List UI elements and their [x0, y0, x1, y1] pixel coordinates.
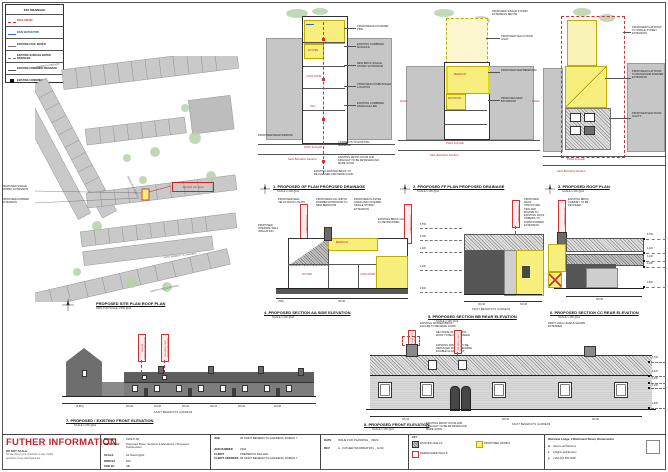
terrace-block-site-row [86, 175, 237, 208]
level-line [651, 383, 666, 384]
section-note: EXISTING PAINTED BRICK FACADE TO BE MADE… [420, 322, 460, 328]
existing-foul-icon [6, 43, 17, 47]
room-label: BATHROOM [448, 98, 461, 100]
manhole-marker [322, 78, 325, 81]
street-name-label: Saint Benedicts Gardens [430, 154, 459, 157]
dimension-label: NO.36 [338, 300, 345, 303]
window [176, 385, 182, 392]
job-row: JOB36 SAINT BENEDICTS GARDENS, DUBLIN 7 [214, 437, 318, 440]
street-name-label: Saint Benedicts Gardens [288, 158, 317, 161]
dimension-label: NO.36 [478, 303, 485, 306]
datum-label: 5,765 [420, 224, 426, 226]
plan-caption: 1. PROPOSED GF PLAN PROPOSED DRAINAGE [273, 184, 365, 189]
drawing-sheet: KEY DRAINAGE FOUL DRAIN RAIN WATER PIPE … [0, 0, 668, 472]
section-bb: 5,765 5,100 4,420 2,400 0,000 PROPOSED R… [420, 198, 545, 332]
dimension-label: NO.38 [592, 418, 599, 421]
door [144, 388, 148, 396]
neighbour-mass [266, 38, 304, 140]
room-label: BEDROOM [454, 74, 466, 76]
titleblock-divider [408, 434, 409, 470]
room-label: HALL [310, 106, 316, 108]
internal-wall [328, 249, 329, 288]
front-door [461, 386, 471, 411]
level-line [651, 376, 666, 377]
window [198, 385, 204, 392]
titleblock-divider [210, 434, 211, 470]
boundary-flag: SITE BOUNDARY [512, 200, 520, 228]
site-note-1: PROPOSED SINGLE STOREY EXTENSION [2, 185, 35, 191]
leader-line [488, 100, 500, 101]
flat-roof-extension [567, 20, 597, 66]
titleblock-divider [320, 434, 321, 470]
plan-ff: BEDROOM BATHROOM PROPOSED SINGLE STOREY … [398, 8, 540, 197]
section-note: PROPOSED INTERNAL WALL INSULATION [258, 224, 284, 234]
dimension-line [370, 416, 642, 417]
dwg-title-row: DWG TITLEProposed Plans, Sections & Elev… [104, 443, 208, 449]
chimney [208, 366, 214, 374]
terrace-block-middle [83, 95, 234, 147]
elevation-flag: PROPOSED ROOF LIGHTS BEHIND [454, 330, 462, 354]
terrace-roof [124, 372, 314, 382]
legend-item-foul-drain: FOUL DRAIN [6, 14, 63, 26]
leader-line [488, 72, 500, 73]
leader-line [344, 86, 356, 87]
elevation-note: SECTIONS OF EXISTING ROOF TO BE DEMOLISH… [436, 331, 470, 337]
level-line [651, 408, 666, 409]
datum-label: 4,420 [420, 248, 426, 250]
room-label: LIVING ROOM [360, 274, 375, 276]
gf-window [378, 382, 392, 398]
room-label: KITCHEN [302, 274, 312, 276]
datum-label: 0,000 [420, 288, 426, 290]
internal-wall [303, 110, 345, 111]
titleblock-divider [544, 434, 545, 470]
neighbour-mass [543, 68, 563, 152]
front-door [450, 386, 460, 411]
section-scale: SCALE 1:100 @A1 [272, 316, 294, 319]
rooflight [570, 113, 581, 122]
proposed-bathroom-area [446, 94, 466, 110]
site-plan-caption: PROPOSED SITE PLAN ROOF PLAN [96, 301, 165, 306]
scale-row: SCALEAs Noted @A1 [104, 453, 145, 457]
road-line [258, 154, 395, 155]
room-label: BEDROOM [336, 242, 348, 244]
gf-window [420, 382, 434, 398]
proposed-rear-works [516, 250, 544, 296]
legend-item-label: FOUL DRAIN [17, 19, 32, 22]
footpath-line [398, 140, 540, 141]
firm-phone-row: p+353 (0)1 830 0000 [548, 457, 576, 460]
elevation-flag: PROPOSED ROOF LIGHTS BEHIND [161, 334, 169, 362]
firm-logo [646, 440, 660, 454]
level-label: 5,765 [652, 357, 658, 359]
level-line [646, 239, 666, 240]
dimension-label: (6,851) [76, 405, 84, 408]
level-label: 0,000 [652, 403, 658, 405]
legend-item-label: EXISTING FOUL WATER [17, 43, 46, 46]
dimension-label: NO.32 [182, 405, 189, 408]
gf-window [492, 382, 506, 398]
chimney [158, 366, 164, 374]
firm-name: Richview Lodge, 2 Richmond Street, Drumc… [548, 437, 644, 441]
dimension-label: NO.30 [154, 405, 161, 408]
key-label: KEY [412, 436, 417, 439]
ground-line [366, 409, 656, 410]
section-note: PROPOSED PLASTER LINED AND COVERED SINGL… [354, 198, 388, 211]
plan-note: PROPOSED SINGLE STOREY EXTENSION BELOW [492, 10, 536, 16]
elevation-caption: 8. PROPOSED FRONT ELEVATION [364, 422, 429, 427]
ckd-by-row: CKD BYSB [104, 464, 130, 468]
dimension-label: NO.36 [596, 298, 603, 301]
room-label: LIVING ROOM [306, 76, 321, 78]
proposed-works-swatch [476, 441, 483, 448]
section-cc: EXISTING BRICK CHIMNEY TO BE RETAINED SI… [548, 198, 666, 332]
datum-label: 5,100 [420, 236, 426, 238]
firm-web-row: wwww.rv-architects.ie [548, 445, 576, 448]
upper-window [428, 360, 437, 370]
level-label: 5,765 [647, 234, 653, 236]
chimney [584, 346, 596, 357]
plan-note: PROPOSED COMBI BOILER LOCATION [357, 83, 393, 89]
manhole-marker [322, 160, 325, 163]
tree [434, 9, 454, 17]
legend-item-label: RAIN WATER PIPE [17, 31, 39, 34]
existing-walls-swatch [412, 441, 419, 448]
north-arrow-icon [545, 184, 555, 194]
site-red-line [142, 189, 149, 200]
level-label: 4,420 [647, 248, 653, 250]
rear-extension-proposed [376, 256, 408, 290]
section-note: PROPOSED FULL WIDTH DORMER EXTENSION TO … [316, 198, 350, 208]
road-line [543, 165, 666, 166]
leader-line [344, 28, 356, 29]
gf-window [558, 382, 572, 398]
leader-line [609, 118, 631, 119]
room-void [586, 268, 618, 288]
foul-drain-icon [6, 19, 17, 23]
dimension-label: NO.38 [520, 303, 527, 306]
internal-wall [445, 110, 487, 111]
manhole-marker [322, 38, 325, 41]
elevation-street: PROPOSED DORMER BEHIND PROPOSED ROOF LIG… [58, 334, 320, 432]
elevation-caption: 7. PROPOSED / EXISTING FRONT ELEVATION [66, 418, 153, 423]
gable-house [66, 362, 102, 396]
level-line [646, 253, 666, 254]
section-poche [464, 250, 504, 294]
datum-line [420, 252, 462, 253]
chimney [258, 366, 264, 374]
north-arrow-icon [400, 184, 410, 194]
legend-item-existing-foul: EXISTING FOUL WATER [6, 38, 63, 50]
manhole-marker [322, 118, 325, 121]
plan-note: EXISTING FRONT DOOR AND FANLIGHT TO BE R… [338, 156, 384, 166]
plan-note: PROPOSED NEW ROOF LIGHTS [632, 112, 664, 118]
level-line [646, 287, 666, 288]
plan-note: PROPOSED RAIN WATER PIPE [357, 25, 393, 31]
street-label: SAINT BENEDICTS GARDENS [154, 411, 192, 414]
elevation-scale: SCALE 1:100 @A1 [372, 428, 394, 431]
dimension-label: NO.36 [238, 405, 245, 408]
sheet-note: architect of any discrepancies. [6, 457, 41, 460]
proposed-dormer-cut [548, 244, 566, 272]
boundary-flag: SITE BOUNDARY [558, 200, 566, 234]
section-caption: 5. PROPOSED SECTION BB REAR ELEVATION [428, 314, 517, 319]
leader-line [344, 46, 356, 47]
dimension-line [62, 403, 316, 404]
datum-label: 2,400 [420, 266, 426, 268]
datum-line [420, 270, 462, 271]
plan-note: PROPOSED NEW BEDROOM [501, 69, 537, 72]
leader-line [486, 38, 500, 39]
level-label: 2,400 [647, 263, 653, 265]
plan-note: PROPOSED VELUX ROOF LIGHT [501, 35, 537, 41]
level-line [651, 362, 666, 363]
rooflight [570, 126, 581, 135]
legend-title: KEY DRAINAGE [6, 5, 63, 14]
plan-roof: PROPOSED FLAT ROOF TO SINGLE STOREY EXTE… [543, 8, 666, 197]
demolished-walls-label: DEMOLISHED WALLS [420, 452, 448, 455]
plan-note: CONNECTS TO EXISTING MANHOLE [338, 141, 378, 147]
existing-walls-label: EXISTING WALLS [420, 442, 442, 445]
leader-line [344, 105, 356, 106]
link-wall [102, 382, 124, 396]
level-label: 3,100 [647, 256, 653, 258]
foul-drain-line [323, 22, 324, 174]
dwn-by-row: DWN BYDW [104, 459, 131, 463]
plan-caption: 3. PROPOSED ROOF PLAN [558, 184, 610, 189]
footpath-line [543, 156, 666, 157]
site-note-2: PROPOSED DORMER EXTENSION [2, 198, 35, 204]
internal-wall [303, 66, 345, 67]
firm-email-row: einfo@rv-architects.ie [548, 451, 577, 454]
roof-band-hatch [566, 238, 644, 252]
door [276, 388, 280, 396]
plan-scale: SCALE 1:100 @A1 [277, 190, 299, 193]
job-number-row: JOB NUMBER2302 [214, 447, 246, 451]
window [154, 385, 160, 392]
door [188, 388, 192, 396]
chimney [298, 368, 304, 376]
neighbour-mass [406, 66, 446, 140]
datum-line [420, 292, 462, 293]
road-label: ROAD [400, 100, 408, 103]
plan-scale: SCALE 1:100 @A1 [562, 190, 584, 193]
dimension-label: NO.34 [402, 418, 409, 421]
rooflight [162, 375, 167, 380]
leader-line [344, 65, 356, 66]
room-label: KITCHEN [308, 50, 318, 52]
rooflight [584, 113, 595, 122]
site-red-line-label-box: Site Red Line Area [172, 182, 214, 192]
footpath-label: Public Footpath [567, 158, 585, 161]
window [286, 385, 292, 392]
plan-note: EXISTING COMBINED MANHOLE [357, 43, 393, 49]
date-row: DATEISSUE FOR PLANNING _ 09/23 [324, 438, 378, 442]
level-label: 0,000 [647, 282, 653, 284]
dimension-line [566, 296, 642, 297]
window [264, 385, 270, 392]
window [242, 385, 248, 392]
datum-line [420, 228, 462, 229]
level-line [651, 388, 666, 389]
gable-roof [66, 348, 102, 362]
plan-caption: 2. PROPOSED FF PLAN PROPOSED DRAINAGE [413, 184, 504, 189]
level-label: 3,400 [652, 378, 658, 380]
sheet-note: All site dims to be checked on site. Not… [6, 453, 53, 456]
chimney [406, 344, 418, 357]
section-note: PROPOSED ROOF STRUCTURE TIED AND BOLTED … [524, 198, 545, 227]
dimension-label: NO.38 [274, 405, 281, 408]
client-address-row: CLIENT ADDRESS36 SAINT BENEDICTS GARDENS… [214, 457, 318, 460]
plan-note: NEW BRICK SINGLE STOREY EXTENSION [357, 62, 393, 68]
internal-wall [303, 42, 345, 43]
surface-water-icon [6, 55, 17, 59]
combined-rj-icon [6, 79, 17, 83]
window [132, 385, 138, 392]
proposed-works-label: PROPOSED WORKS [484, 442, 510, 445]
flat-roof-dormer [565, 66, 607, 108]
ground-line [554, 288, 644, 289]
dimension-label: (765) [278, 300, 284, 303]
plan-scale: SCALE 1:100 @A1 [417, 190, 439, 193]
elevation-front: SECTIONS OF EXISTING ROOF TO BE DEMOLISH… [362, 330, 666, 432]
internal-wall [358, 264, 359, 288]
street-name-label: Saint Benedicts Gardens [557, 170, 586, 173]
further-information-title: FUTHER INFORMATION [6, 437, 117, 448]
leader-line [623, 32, 631, 33]
site-plan-scale: DWG P-60 SCALE 1:500 @A1 [96, 307, 132, 310]
section-scale: SCALE 1:100 @A1 [558, 316, 580, 319]
elevation-note: EXISTING FRONT DOOR AND FANLIGHT TO BE R… [426, 422, 470, 432]
rooflight [142, 375, 147, 380]
elevation-scale: SCALE 1:200 @A1 [74, 424, 96, 427]
dimension-line [276, 298, 408, 299]
window [220, 385, 226, 392]
dimension-label: NO.34 [210, 405, 217, 408]
dimension-line [464, 301, 542, 302]
rain-water-pipe-icon [6, 31, 17, 35]
demolished-walls-swatch [412, 451, 419, 458]
plan-note: PROPOSED FLAT ROOF TO SINGLE STOREY EXTE… [632, 26, 664, 36]
footpath-label: Public Footpath [304, 146, 322, 149]
footpath-label: Public Footpath [446, 142, 464, 145]
ground-line [62, 396, 316, 397]
level-label: 3,100 [652, 385, 658, 387]
titleblock-top-border [2, 434, 666, 435]
plan-note: PROPOSED FLAT ROOF TO BATHROOM DORMER EX… [632, 70, 664, 80]
chimney [324, 227, 332, 241]
combined-drainage-icon [6, 67, 17, 71]
elevation-wall [370, 375, 652, 410]
datum-line [420, 240, 462, 241]
level-line [646, 261, 666, 262]
plan-gf: KITCHEN LIVING ROOM HALL PROPOSED RAIN W… [258, 8, 395, 197]
level-line [646, 267, 666, 268]
road-label: ROAD [532, 100, 540, 103]
upper-window [458, 360, 467, 370]
ground-poche [276, 289, 408, 294]
window-opening [522, 266, 530, 278]
roof-hatch [370, 355, 652, 376]
legend-item-rain-water: RAIN WATER PIPE [6, 26, 63, 38]
proposed-opening-marked [548, 272, 562, 288]
plan-note: PROPOSED REAR WINDOW [258, 134, 298, 137]
leader-line [605, 78, 631, 79]
level-label: 4,420 [652, 371, 658, 373]
tree [573, 8, 591, 16]
internal-wall [303, 88, 345, 89]
section-caption: 4. PROPOSED SECTION AA SIDE ELEVATION [264, 310, 350, 315]
dimension-label: NO.36 [502, 418, 509, 421]
plan-note: EXISTING PAINTED BRICK TO BE CLEANED AND… [314, 170, 354, 176]
road-line [398, 150, 540, 151]
section-note: PARTY WALL LEVELS SHOWN EXTENDED [548, 322, 592, 328]
street-label: SAINT BENEDICTS GARDENS [512, 423, 550, 426]
extension-below-outline [446, 18, 488, 64]
elevation-flag: PROPOSED DORMER BEHIND [138, 334, 146, 362]
ground-line [464, 294, 542, 295]
rev-row: REVA - FUTHER INFORMATION _ 11/23 [324, 446, 384, 450]
section-note: EXISTING BRICK CHIMNEY TO BE RETAINED [568, 198, 596, 208]
site-red-line-label: Site Red Line Area [183, 186, 204, 189]
door [232, 388, 236, 396]
north-arrow-icon [62, 299, 74, 311]
proposed-bedroom-area [446, 66, 490, 94]
roof-vent [584, 126, 595, 135]
site-plan-map [35, 56, 250, 302]
section-caption: 6. PROPOSED SECTION CC REAR ELEVATION [550, 310, 639, 315]
section-aa: PROPOSED NEW VELUX ROOF LIGHTS PROPOSED … [258, 198, 415, 332]
gf-window [614, 382, 628, 398]
dimension-label: NO.28 [126, 405, 133, 408]
internal-wall [445, 124, 487, 125]
street-label: SAINT BENEDICTS GARDENS [472, 308, 510, 311]
tree [312, 8, 328, 15]
plan-note: EXISTING COMBINED DRAINAGE LINE [357, 102, 393, 108]
window [82, 370, 87, 377]
north-arrow-icon [260, 184, 270, 194]
rain-water-pipe [306, 24, 314, 25]
dwg-no-row: DWG NO2302-P-60 [104, 437, 139, 441]
dormer-proposed [328, 238, 378, 251]
